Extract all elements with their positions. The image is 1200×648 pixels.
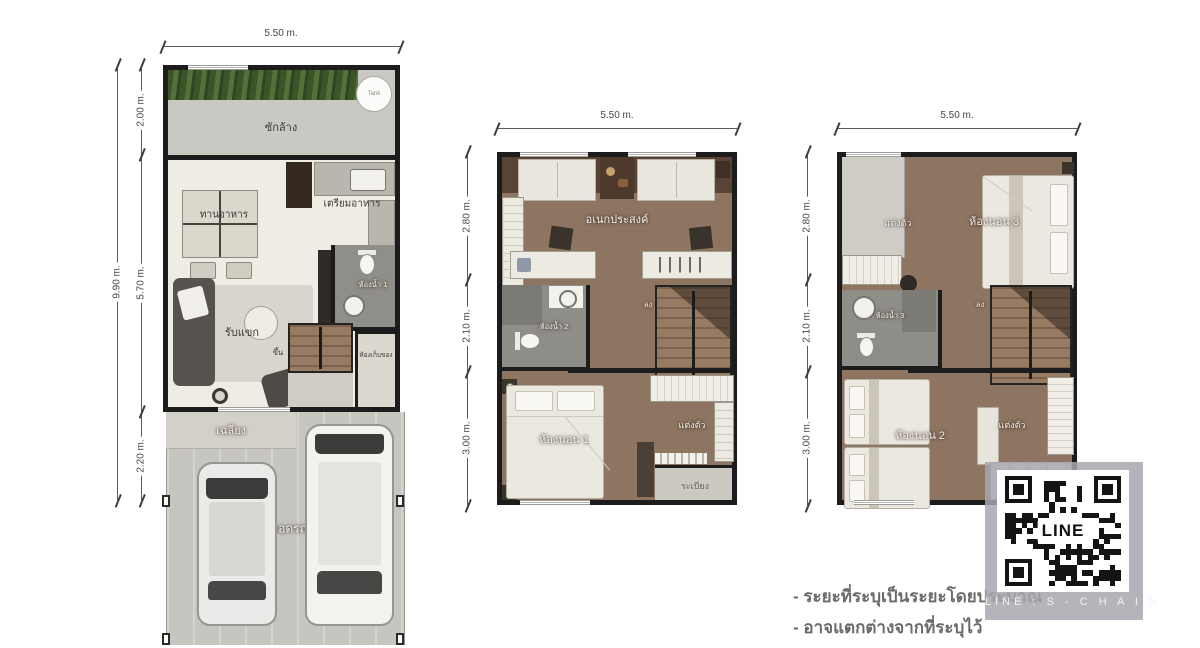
bedroom3-label: ห้องนอน 3 xyxy=(969,212,1019,230)
desk-chair xyxy=(549,226,574,251)
interior-wall xyxy=(568,368,732,373)
floorplan-sheet: 5.50 m. 9.90 m. 2.00 m. 5.70 m. 2.20 m. … xyxy=(0,0,1200,648)
bathroom2: ห้องน้ำ 2 xyxy=(502,285,590,371)
bathroom-sink xyxy=(852,296,876,320)
grass-strip xyxy=(168,70,358,100)
water-tank: Tank xyxy=(356,76,392,112)
floor3-dressing-bottom-label: แต่งตัว xyxy=(999,418,1026,432)
window xyxy=(628,152,696,157)
stairs-up-label: ขึ้น xyxy=(273,347,283,359)
laundry-label: ซักล้าง xyxy=(265,118,297,136)
dining-label: ทานอาหาร xyxy=(200,208,248,223)
dining-chair xyxy=(226,262,252,279)
bathroom2-label: ห้องน้ำ 2 xyxy=(540,321,569,333)
window xyxy=(854,500,914,505)
vanity xyxy=(548,285,584,309)
window xyxy=(218,407,290,412)
floor3-width-dimension-line xyxy=(837,128,1077,129)
center-table xyxy=(600,157,634,199)
nightstand xyxy=(1062,162,1074,174)
stair-void xyxy=(842,157,905,258)
floor1-plan: Tank ซักล้าง เตรียมอาหาร ทานอาหาร ห้องน้… xyxy=(163,65,400,412)
interior-wall xyxy=(908,368,1072,373)
line-account-caption: LINE : S - C H A I N xyxy=(985,596,1143,608)
bathroom1: ห้องน้ำ 1 xyxy=(331,245,395,331)
bathroom1-label: ห้องน้ำ 1 xyxy=(359,279,388,291)
floor1-segment-3: 2.20 m. xyxy=(136,436,147,475)
desk-right xyxy=(642,251,732,279)
car-suv xyxy=(305,424,394,626)
qr-finder-icon xyxy=(1005,476,1032,503)
stove-counter xyxy=(286,162,312,208)
floor1-segment-1: 2.00 m. xyxy=(136,90,147,129)
shower xyxy=(902,290,936,332)
window xyxy=(520,500,590,505)
floor3-dressing-top-label: แต่งตัว xyxy=(885,216,912,230)
stairs-up xyxy=(288,323,353,373)
balcony-door xyxy=(655,453,707,464)
hall-runner xyxy=(637,442,654,497)
stair-landing xyxy=(288,373,353,407)
tank-label: Tank xyxy=(368,91,381,97)
window xyxy=(520,152,588,157)
shower xyxy=(502,285,542,325)
line-watermark-panel: LINE LINE : S - C H A I N xyxy=(985,462,1143,620)
floor-lamp xyxy=(212,388,228,404)
carport-post xyxy=(396,495,404,507)
kitchen-counter xyxy=(314,162,395,196)
floor3-stair-label: ลง xyxy=(976,299,984,311)
toilet-bowl xyxy=(859,337,874,357)
qr-finder-icon xyxy=(1094,476,1121,503)
floor2-segment-2: 2.10 m. xyxy=(462,306,473,345)
floor1-width-dimension-line xyxy=(163,46,400,47)
floor1-segment-2: 5.70 m. xyxy=(136,263,147,302)
sofa-throw xyxy=(177,285,209,320)
bed3 xyxy=(982,175,1074,289)
bedroom2-label: ห้องนอน 2 xyxy=(895,426,945,444)
floor3-plan: แต่งตัว ห้องนอน 3 ห้องน้ำ 3 ลง xyxy=(837,152,1077,505)
daybed-right xyxy=(637,159,715,201)
carport-post xyxy=(396,633,404,645)
toilet-bowl xyxy=(520,333,540,349)
sofa xyxy=(173,278,215,386)
dining-chair xyxy=(190,262,216,279)
desk-chair xyxy=(689,226,713,250)
toilet-bowl xyxy=(359,254,375,275)
bathroom-sink xyxy=(343,295,365,317)
bathroom3: ห้องน้ำ 3 xyxy=(842,290,942,370)
wardrobe xyxy=(650,375,734,402)
floor2-stair-label: ลง xyxy=(644,299,652,311)
wardrobe-bottom xyxy=(1047,377,1074,455)
note-line-2: - อาจแตกต่างจากที่ระบุไว้ xyxy=(793,614,982,641)
bathroom3-label: ห้องน้ำ 3 xyxy=(876,310,905,322)
living-label: รับแขก xyxy=(225,323,259,341)
balcony-label: ระเบียง xyxy=(681,479,709,493)
carport-post xyxy=(162,633,170,645)
pantry-label: เตรียมอาหาร xyxy=(324,197,381,212)
laundry-area: Tank ซักล้าง xyxy=(168,70,395,160)
desk-left xyxy=(510,251,596,279)
qr-center-label: LINE xyxy=(1038,521,1089,541)
carport-post xyxy=(162,495,170,507)
floor3-segment-1: 2.80 m. xyxy=(802,196,813,235)
hall-runner-light xyxy=(977,407,999,465)
balcony: ระเบียง xyxy=(655,465,732,500)
window xyxy=(188,65,248,70)
floor2-width-dimension: 5.50 m. xyxy=(600,110,633,121)
floor2-plan: อเนกประสงค์ ห้องน้ำ 2 ลง แต่งตัว xyxy=(497,152,737,505)
corner-cabinet xyxy=(716,161,730,178)
kitchen-sink xyxy=(350,169,386,191)
floor2-segment-1: 2.80 m. xyxy=(462,196,473,235)
storage-room xyxy=(355,331,395,407)
dresser-shelf xyxy=(714,402,734,462)
floor2-segment-3: 3.00 m. xyxy=(462,418,473,457)
wardrobe-top xyxy=(842,255,902,285)
porch-label: เฉลียง xyxy=(216,421,246,439)
qr-finder-icon xyxy=(1005,559,1032,586)
floor1-width-dimension: 5.50 m. xyxy=(264,28,297,39)
storage-label: ห้องเก็บของ xyxy=(359,350,392,360)
window xyxy=(846,152,901,157)
floor1-depth-dimension: 9.90 m. xyxy=(112,262,123,301)
bedroom1-label: ห้องนอน 1 xyxy=(539,430,589,448)
floor2-width-dimension-line xyxy=(497,128,737,129)
dining-table xyxy=(182,190,258,258)
floor2-dressing-label: แต่งตัว xyxy=(679,418,706,432)
multipurpose-label: อเนกประสงค์ xyxy=(586,210,649,228)
car-small xyxy=(197,462,277,626)
floor3-segment-3: 3.00 m. xyxy=(802,418,813,457)
floor3-width-dimension: 5.50 m. xyxy=(940,110,973,121)
daybed-left xyxy=(518,159,596,201)
qr-code: LINE xyxy=(997,470,1129,592)
floor3-segment-2: 2.10 m. xyxy=(802,306,813,345)
